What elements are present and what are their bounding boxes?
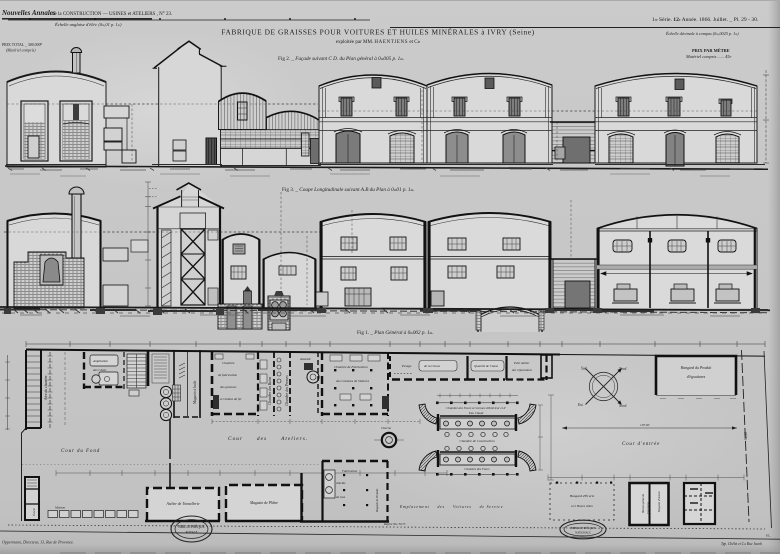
svg-text:Citerne: Citerne [381, 426, 392, 430]
svg-text:Alambic: Alambic [299, 357, 312, 361]
svg-text:Magasin de Produits: Magasin de Produits [376, 489, 379, 513]
svg-text:(Matériel compris): (Matériel compris) [6, 49, 36, 53]
svg-text:Écurie: Écurie [31, 507, 36, 517]
svg-text:Est.: Est. [577, 403, 584, 407]
svg-text:BIBLIOTHÈQUE: BIBLIOTHÈQUE [178, 524, 205, 529]
svg-text:Petit Atelier: Petit Atelier [513, 361, 530, 365]
svg-text:Fig 2. _ Façade suivant C D. d: Fig 2. _ Façade suivant C D. du Plan gén… [278, 56, 404, 62]
svg-text:de fabrication: de fabrication [218, 373, 237, 377]
svg-text:Chambre des Bains: Chambre des Bains [268, 376, 272, 405]
svg-text:Sud.: Sud. [581, 367, 587, 371]
svg-text:Cour d'entrée: Cour d'entrée [622, 442, 660, 447]
svg-text:NATIONALE: NATIONALE [575, 532, 591, 535]
svg-text:Pesage: Pesage [401, 364, 412, 368]
svg-text:d'égouttures: d'égouttures [687, 375, 706, 379]
svg-text:exploitée par MM. HAENTJENS et: exploitée par MM. HAENTJENS et Cie [336, 40, 421, 45]
svg-text:Chambre des Presses: Chambre des Presses [285, 375, 289, 406]
svg-text:Nord.: Nord. [618, 404, 627, 408]
svg-text:Cour du Fond: Cour du Fond [61, 449, 100, 454]
svg-text:Typ. Chélet et Cie Rue Jacob: Typ. Chélet et Cie Rue Jacob [721, 542, 762, 546]
svg-text:des graisses: des graisses [220, 385, 237, 389]
svg-text:Aire du chantier: Aire du chantier [44, 375, 48, 401]
svg-text:des Chais: des Chais [93, 368, 107, 372]
svg-text:Hangard du Produit: Hangard du Produit [680, 366, 713, 370]
svg-text:Eau Chaud: Eau Chaud [468, 411, 484, 415]
svg-text:Chambre de Fabrication: Chambre de Fabrication [334, 365, 368, 369]
svg-text:Maison: Maison [54, 506, 65, 510]
svg-text:d'Acide: d'Acide [336, 481, 346, 485]
svg-text:des Graisses de Voitures: des Graisses de Voitures [336, 379, 370, 383]
svg-text:1re Série. 12e Année. 1866. Ju: 1re Série. 12e Année. 1866. Juillet. _ P… [652, 17, 759, 23]
svg-text:Concierge: Concierge [646, 501, 650, 514]
svg-text:Atelier de Tonnellerie: Atelier de Tonnellerie [166, 502, 200, 506]
svg-text:Chambre: Chambre [222, 361, 235, 365]
svg-text:du Gaz: du Gaz [336, 495, 346, 499]
svg-text:et résidus de fer: et résidus de fer [220, 397, 242, 401]
svg-text:P.L.: P.L. [766, 534, 771, 538]
svg-text:des réparations: des réparations [512, 368, 533, 372]
svg-text:FABRIQUE DE GRAISSES POUR VOIT: FABRIQUE DE GRAISSES POUR VOITURES ET HU… [221, 27, 534, 37]
svg-text:Hangard d'Écurie: Hangard d'Écurie [569, 493, 595, 498]
svg-text:Chambre de Construction: Chambre de Construction [459, 439, 494, 443]
svg-text:Quantité de Chaux: Quantité de Chaux [474, 364, 499, 368]
svg-text:PRIX TOTAL _ 300.000F: PRIX TOTAL _ 300.000F [2, 42, 43, 47]
svg-text:Bureau ponté de: Bureau ponté de [641, 493, 645, 513]
svg-text:Magasin de Plâtre: Magasin de Plâtre [249, 501, 278, 505]
svg-text:Fig 1. _ Plan Général à 0m002: Fig 1. _ Plan Général à 0m002 p. 1m. [357, 330, 434, 336]
svg-text:Chambre des Fours à Cornues d': Chambre des Fours à Cornues d'Intérieur … [446, 406, 506, 410]
svg-text:Fabrication: Fabrication [341, 469, 358, 473]
svg-text:et 2 Boxes vides: et 2 Boxes vides [571, 504, 593, 508]
svg-text:Chambre des Fours: Chambre des Fours [464, 467, 490, 471]
svg-text:Nord.: Nord. [618, 367, 627, 371]
svg-text:Magasin d'Avoine: Magasin d'Avoine [657, 491, 661, 513]
svg-text:Nouvelles Annales: Nouvelles Annales [1, 9, 56, 17]
svg-text:ROYALE: ROYALE [186, 530, 198, 534]
svg-text:Matériel compris ...... 45F: Matériel compris ...... 45F [685, 54, 732, 59]
svg-text:PRIX PAR MÈTRE: PRIX PAR MÈTRE [692, 48, 730, 53]
svg-text:de la CONSTRUCTION — USINES et: de la CONSTRUCTION — USINES et ATELIERS … [52, 12, 172, 17]
svg-text:Magasin à huile: Magasin à huile [193, 380, 197, 405]
svg-text:BIBLIOTHÈQUE: BIBLIOTHÈQUE [571, 525, 596, 530]
svg-text:Ampliation: Ampliation [92, 359, 108, 363]
svg-text:de la Chaux: de la Chaux [424, 364, 440, 368]
